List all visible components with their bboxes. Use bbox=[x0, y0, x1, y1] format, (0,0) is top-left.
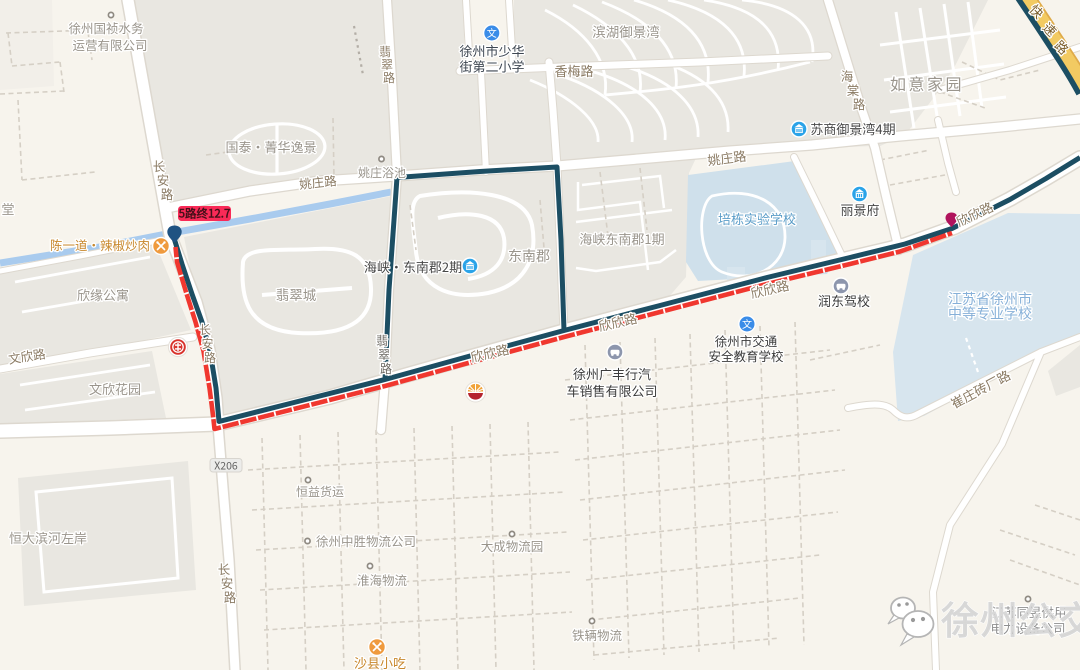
svg-text:香梅路: 香梅路 bbox=[554, 61, 593, 80]
svg-text:运营有限公司: 运营有限公司 bbox=[72, 35, 147, 54]
svg-text:文: 文 bbox=[742, 316, 752, 331]
svg-text:路: 路 bbox=[161, 184, 174, 203]
svg-text:恒大滨河左岸: 恒大滨河左岸 bbox=[9, 528, 87, 547]
svg-text:路: 路 bbox=[383, 69, 395, 86]
svg-text:路: 路 bbox=[204, 349, 216, 366]
svg-text:培栋实验学校: 培栋实验学校 bbox=[718, 209, 796, 228]
svg-text:东南郡: 东南郡 bbox=[508, 246, 550, 266]
svg-text:X206: X206 bbox=[214, 459, 238, 474]
svg-text:街第二小学: 街第二小学 bbox=[459, 57, 524, 76]
svg-text:文欣花园: 文欣花园 bbox=[89, 379, 141, 398]
svg-text:姚庄路: 姚庄路 bbox=[298, 170, 338, 193]
svg-text:苏商御景湾4期: 苏商御景湾4期 bbox=[810, 119, 895, 138]
svg-text:车销售有限公司: 车销售有限公司 bbox=[566, 381, 657, 400]
svg-text:路: 路 bbox=[853, 94, 866, 113]
svg-text:恒益货运: 恒益货运 bbox=[296, 483, 344, 500]
svg-text:姚庄浴池: 姚庄浴池 bbox=[358, 164, 406, 181]
svg-text:滨湖御景湾: 滨湖御景湾 bbox=[592, 21, 660, 41]
svg-text:大成物流园: 大成物流园 bbox=[481, 536, 544, 555]
svg-text:徐州中胜物流公司: 徐州中胜物流公司 bbox=[316, 531, 416, 550]
svg-text:陈一道·辣椒炒肉: 陈一道·辣椒炒肉 bbox=[50, 235, 150, 254]
svg-text:丽景府: 丽景府 bbox=[840, 200, 879, 219]
svg-text:铁辆物流: 铁辆物流 bbox=[572, 625, 623, 644]
svg-text:翡翠城: 翡翠城 bbox=[276, 284, 317, 304]
svg-text:路: 路 bbox=[380, 360, 392, 377]
svg-text:徐州公交: 徐州公交 bbox=[940, 590, 1080, 645]
svg-text:路: 路 bbox=[224, 587, 237, 606]
svg-text:沙县小吃: 沙县小吃 bbox=[354, 653, 406, 670]
svg-text:安全教育学校: 安全教育学校 bbox=[708, 346, 784, 365]
svg-text:海峡·东南郡2期: 海峡·东南郡2期 bbox=[364, 257, 462, 276]
svg-text:海峡东南郡1期: 海峡东南郡1期 bbox=[579, 229, 664, 248]
svg-text:淮海物流: 淮海物流 bbox=[357, 570, 408, 589]
svg-text:润东驾校: 润东驾校 bbox=[818, 291, 870, 310]
svg-text:国泰·菁华逸景: 国泰·菁华逸景 bbox=[225, 137, 316, 156]
svg-text:堂: 堂 bbox=[1, 199, 14, 218]
svg-text:文: 文 bbox=[487, 25, 497, 40]
svg-text:5路终12.7: 5路终12.7 bbox=[178, 206, 231, 222]
svg-text:如意家园: 如意家园 bbox=[890, 71, 964, 95]
svg-text:中等专业学校: 中等专业学校 bbox=[948, 304, 1032, 324]
svg-text:欣缘公寓: 欣缘公寓 bbox=[77, 285, 129, 304]
